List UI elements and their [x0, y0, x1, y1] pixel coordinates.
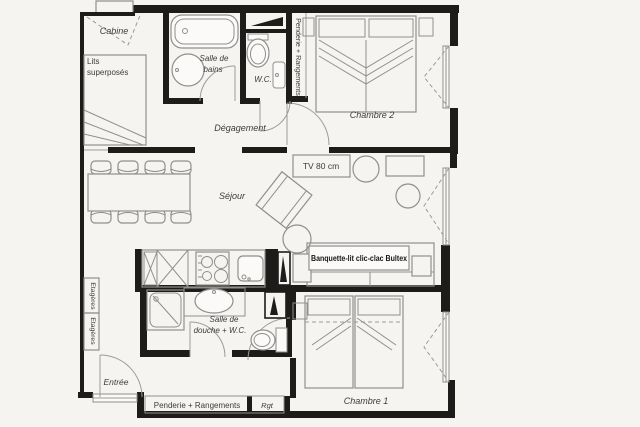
label-etageres-2: Etagères — [89, 317, 96, 345]
label-douche-2: douche + W.C. — [194, 326, 247, 335]
label-entree: Entrée — [103, 377, 128, 387]
scanned-floor-plan-page: Cabine Lits superposés Salle de bains W.… — [0, 0, 640, 427]
label-tv: TV 80 cm — [303, 161, 339, 171]
wc-sink — [273, 62, 285, 88]
floor-plan-image: Cabine Lits superposés Salle de bains W.… — [0, 0, 640, 427]
dining-table — [88, 174, 190, 211]
sofa-armrest — [412, 256, 431, 276]
label-chambre2: Chambre 2 — [350, 110, 395, 120]
label-penderie-bottom: Penderie + Rangements — [154, 401, 241, 410]
label-bains-2: bains — [203, 65, 222, 74]
label-lits-1: Lits — [87, 57, 99, 66]
kitchen-door-leaf — [278, 252, 290, 285]
label-banquette: Banquette-lit clic-clac Bultex — [311, 254, 407, 263]
label-chambre1: Chambre 1 — [344, 396, 389, 406]
label-bains-1: Salle de — [200, 54, 229, 63]
label-rgt: Rgt — [261, 401, 274, 410]
label-penderie-top: Penderie + Rangements — [294, 18, 303, 96]
sofa-armrest — [293, 254, 311, 282]
label-degagement: Dégagement — [214, 123, 266, 133]
label-wc: W.C. — [254, 75, 271, 84]
douche-toilet — [251, 328, 287, 352]
label-sejour: Séjour — [219, 191, 246, 201]
kitchen-sink — [238, 256, 263, 281]
wc-toilet — [247, 34, 269, 67]
bathtub — [171, 15, 238, 48]
douche-door-leaf — [265, 292, 286, 318]
label-douche-1: Salle de — [210, 315, 239, 324]
label-cabine: Cabine — [100, 26, 129, 36]
label-lits-2: superposés — [87, 68, 128, 77]
label-etageres-1: Etagères — [89, 282, 96, 310]
